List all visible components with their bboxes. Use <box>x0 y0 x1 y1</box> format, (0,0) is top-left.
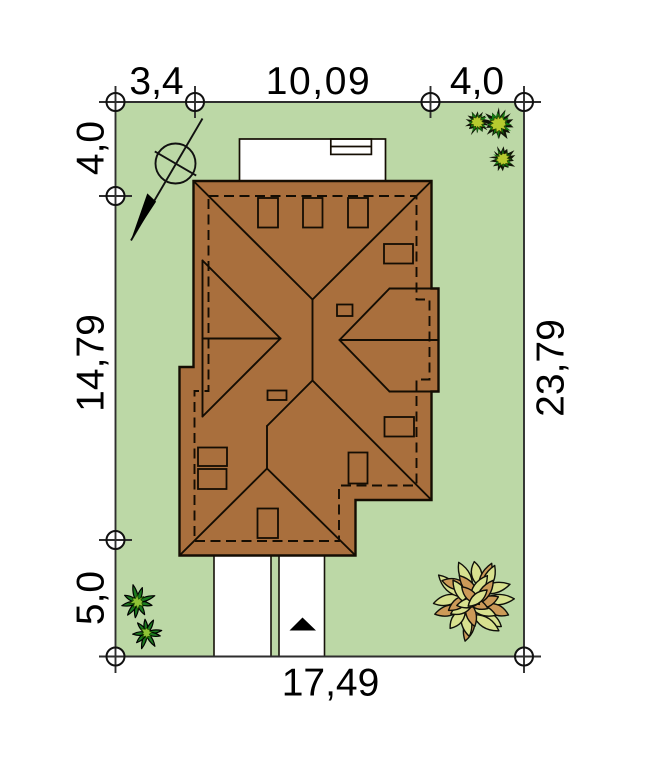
svg-text:14,79: 14,79 <box>70 314 113 412</box>
svg-text:23,79: 23,79 <box>530 319 573 417</box>
svg-text:5,0: 5,0 <box>70 571 113 625</box>
svg-text:17,49: 17,49 <box>282 662 380 705</box>
svg-text:3,4: 3,4 <box>129 60 183 103</box>
svg-text:4,0: 4,0 <box>70 121 113 175</box>
svg-text:4,0: 4,0 <box>450 60 504 103</box>
svg-text:10,09: 10,09 <box>266 60 372 103</box>
